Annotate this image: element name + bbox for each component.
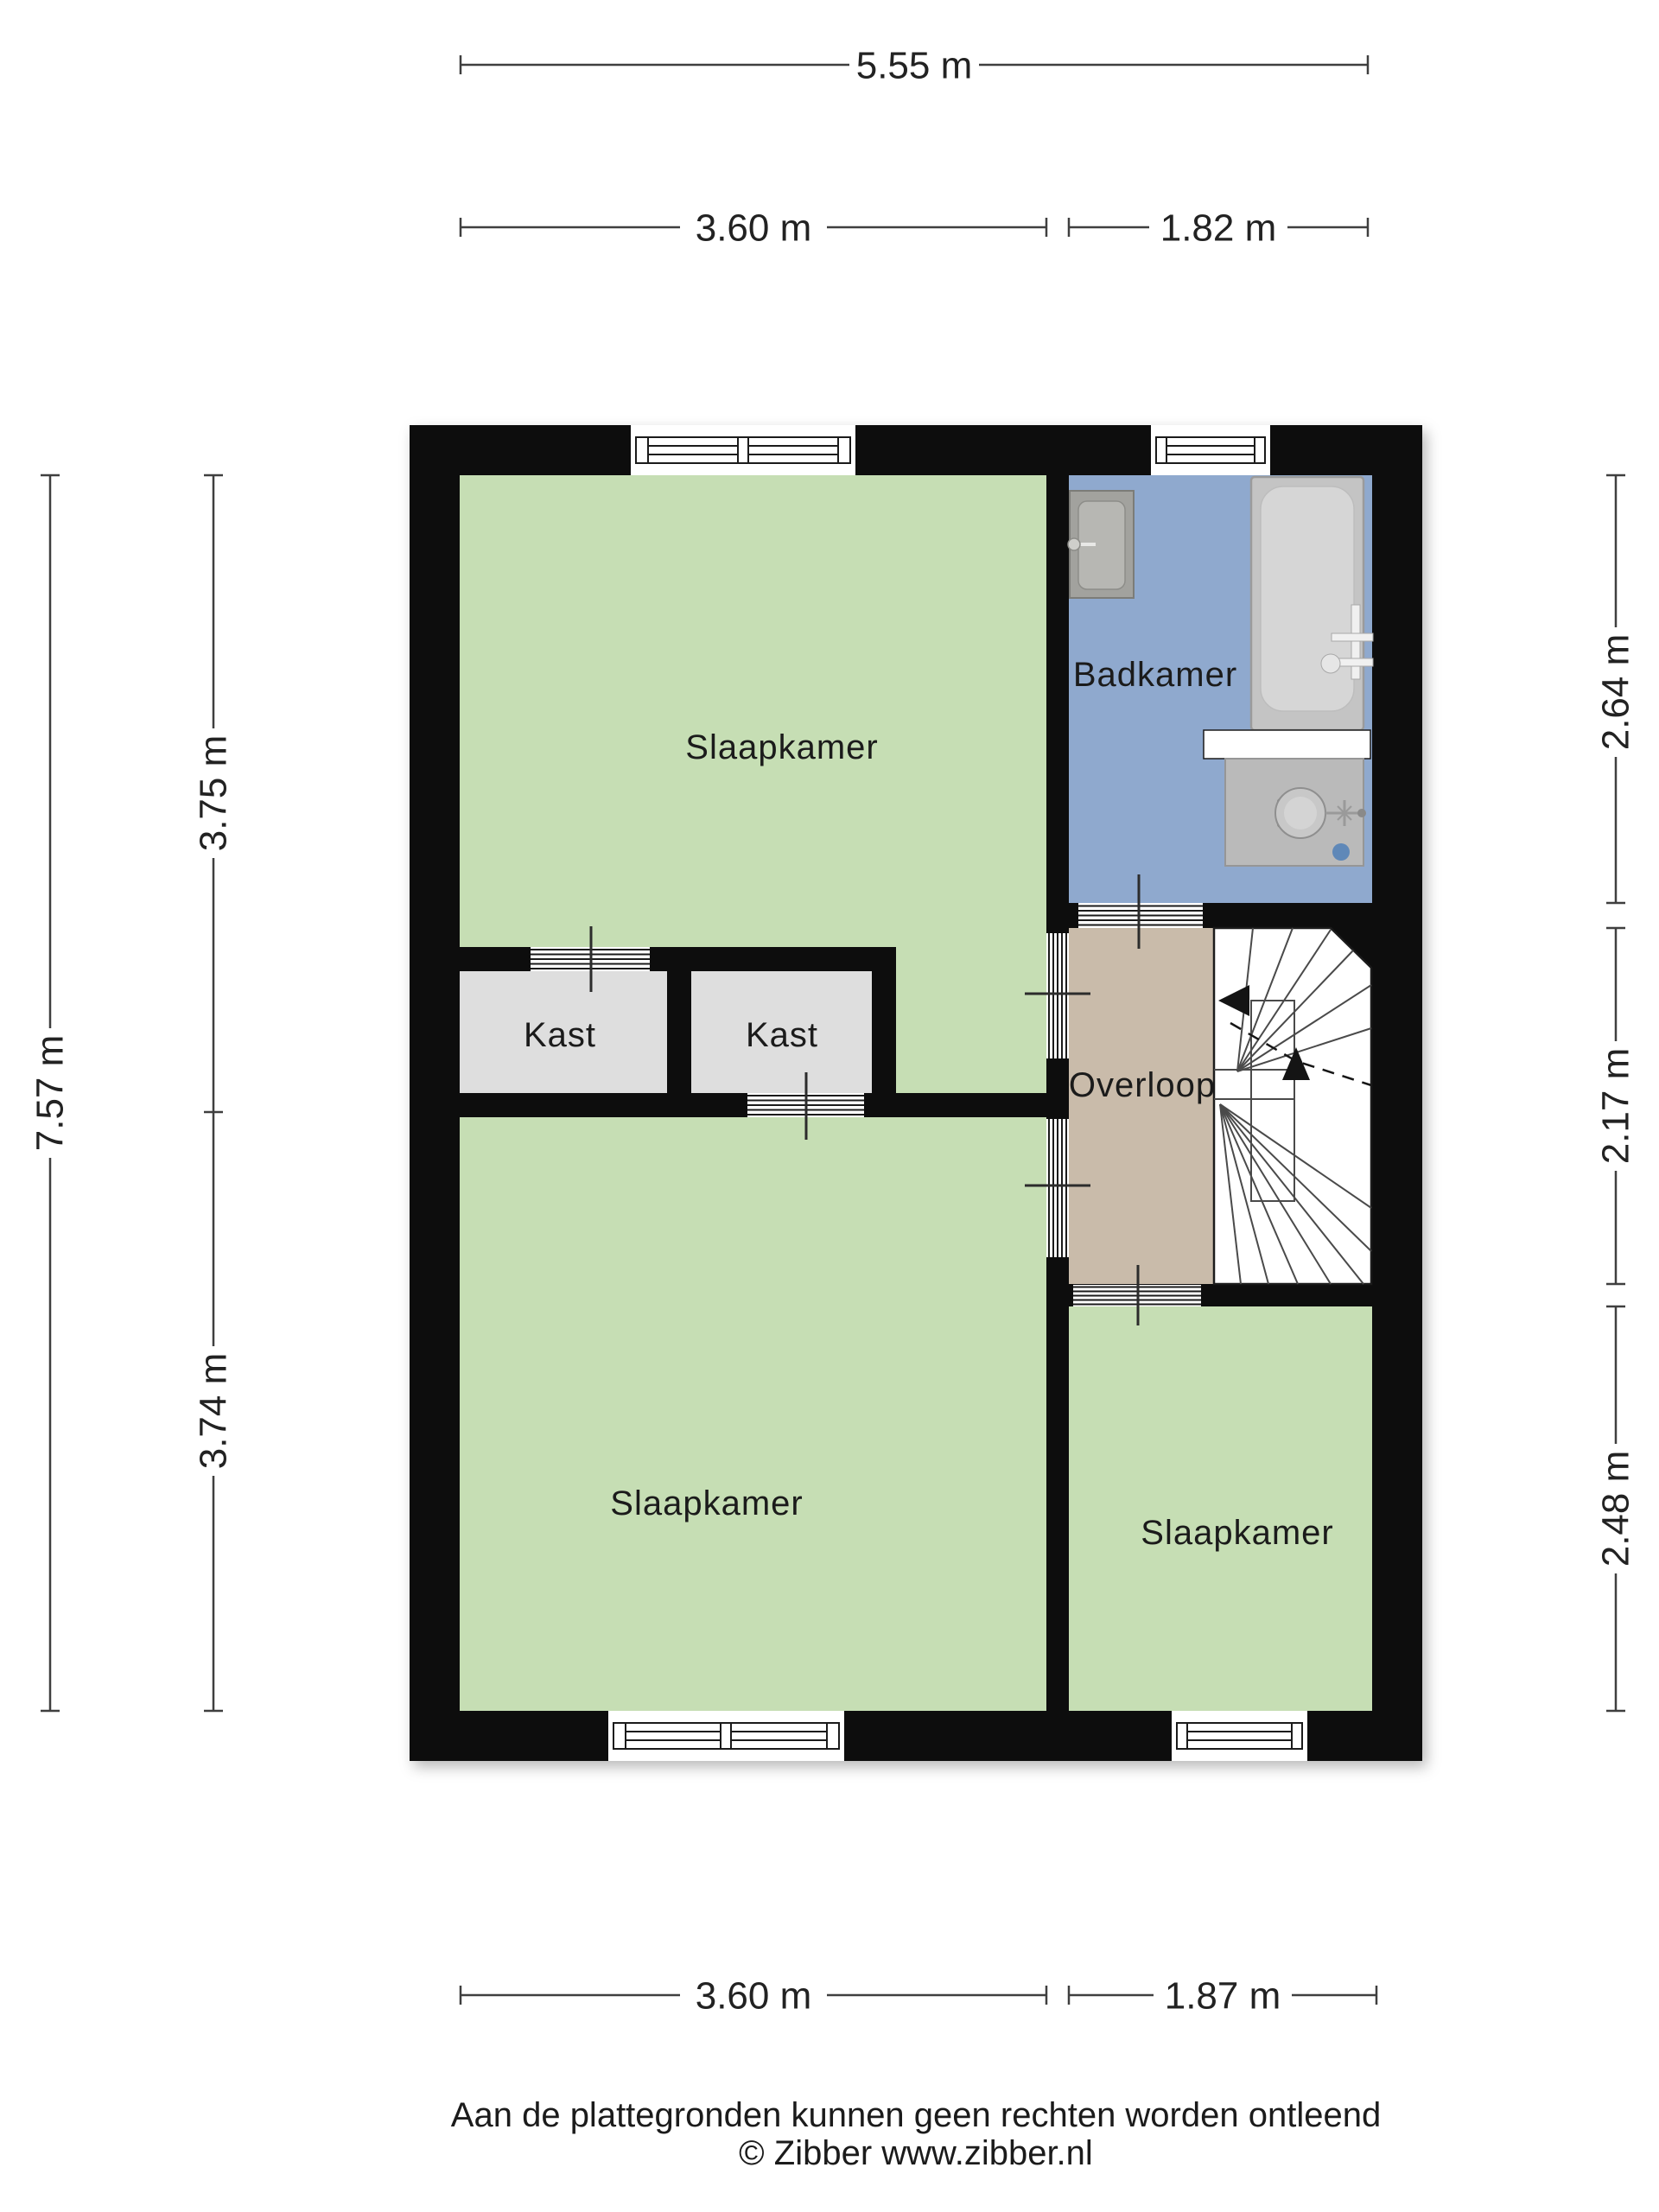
stairs-outline bbox=[1214, 928, 1371, 1284]
floor-plan-page: 5.55 m 3.60 m 1.82 m 3.60 m bbox=[0, 0, 1659, 2212]
stairs bbox=[1214, 928, 1371, 1284]
dimension-top-left: 3.60 m bbox=[461, 207, 1046, 250]
room-label-kast-left: Kast bbox=[524, 1016, 596, 1054]
dimension-right-lower: 2.48 m bbox=[1595, 1306, 1637, 1711]
dimension-left-upper: 3.75 m bbox=[193, 475, 235, 1112]
bathtub bbox=[1251, 477, 1373, 730]
dimension-left-lower-label: 3.74 m bbox=[193, 1353, 235, 1470]
dimension-bottom-right: 1.87 m bbox=[1069, 1975, 1376, 2018]
room-label-badkamer: Badkamer bbox=[1073, 656, 1237, 694]
room-label-kast-right: Kast bbox=[746, 1016, 818, 1054]
floor-plan-drawing: 5.55 m 3.60 m 1.82 m 3.60 m bbox=[0, 0, 1659, 2212]
room-label-slaapkamer-bottom-right: Slaapkamer bbox=[1141, 1514, 1333, 1552]
washbasin-drain bbox=[1332, 843, 1350, 861]
bathroom-counter bbox=[1204, 730, 1370, 759]
window-bottom-slaapkamer-left bbox=[608, 1711, 844, 1761]
room-overloop bbox=[1069, 928, 1214, 1284]
room-label-overloop: Overloop bbox=[1069, 1066, 1216, 1104]
room-label-slaapkamer-bottom-left: Slaapkamer bbox=[610, 1484, 803, 1522]
footer: Aan de plattegronden kunnen geen rechten… bbox=[451, 2096, 1381, 2172]
dimension-left-upper-label: 3.75 m bbox=[193, 735, 235, 852]
dimension-right-upper: 2.64 m bbox=[1595, 475, 1637, 903]
dimension-left-total: 7.57 m bbox=[29, 475, 72, 1711]
dimension-top-total: 5.55 m bbox=[461, 45, 1368, 87]
dimension-right-middle: 2.17 m bbox=[1595, 928, 1637, 1284]
footer-copyright: © Zibber www.zibber.nl bbox=[739, 2134, 1093, 2172]
footer-disclaimer: Aan de plattegronden kunnen geen rechten… bbox=[451, 2096, 1381, 2134]
window-top-badkamer bbox=[1151, 425, 1270, 475]
window-top-slaapkamer bbox=[631, 425, 855, 475]
dimension-bottom-left-label: 3.60 m bbox=[696, 1975, 812, 2018]
room-slaapkamer-bottom-right bbox=[1069, 1306, 1372, 1711]
room-label-slaapkamer-top: Slaapkamer bbox=[685, 728, 878, 766]
dimension-bottom-right-label: 1.87 m bbox=[1165, 1975, 1281, 2018]
dimension-bottom-left: 3.60 m bbox=[461, 1975, 1046, 2018]
dimension-top-right-label: 1.82 m bbox=[1160, 207, 1277, 250]
washbasin bbox=[1225, 759, 1366, 866]
dimension-left-lower: 3.74 m bbox=[193, 1112, 235, 1711]
dimension-top-total-label: 5.55 m bbox=[856, 45, 973, 87]
dimension-left-total-label: 7.57 m bbox=[29, 1035, 72, 1152]
dimension-right-lower-label: 2.48 m bbox=[1595, 1451, 1637, 1567]
room-slaapkamer-bottom-left bbox=[460, 1117, 1046, 1711]
dimension-right-upper-label: 2.64 m bbox=[1595, 634, 1637, 751]
dimension-top-left-label: 3.60 m bbox=[696, 207, 812, 250]
window-bottom-slaapkamer-right bbox=[1172, 1711, 1307, 1761]
dimension-right-middle-label: 2.17 m bbox=[1595, 1048, 1637, 1165]
dimension-top-right: 1.82 m bbox=[1069, 207, 1368, 250]
bathroom-cabinet bbox=[1068, 491, 1134, 598]
